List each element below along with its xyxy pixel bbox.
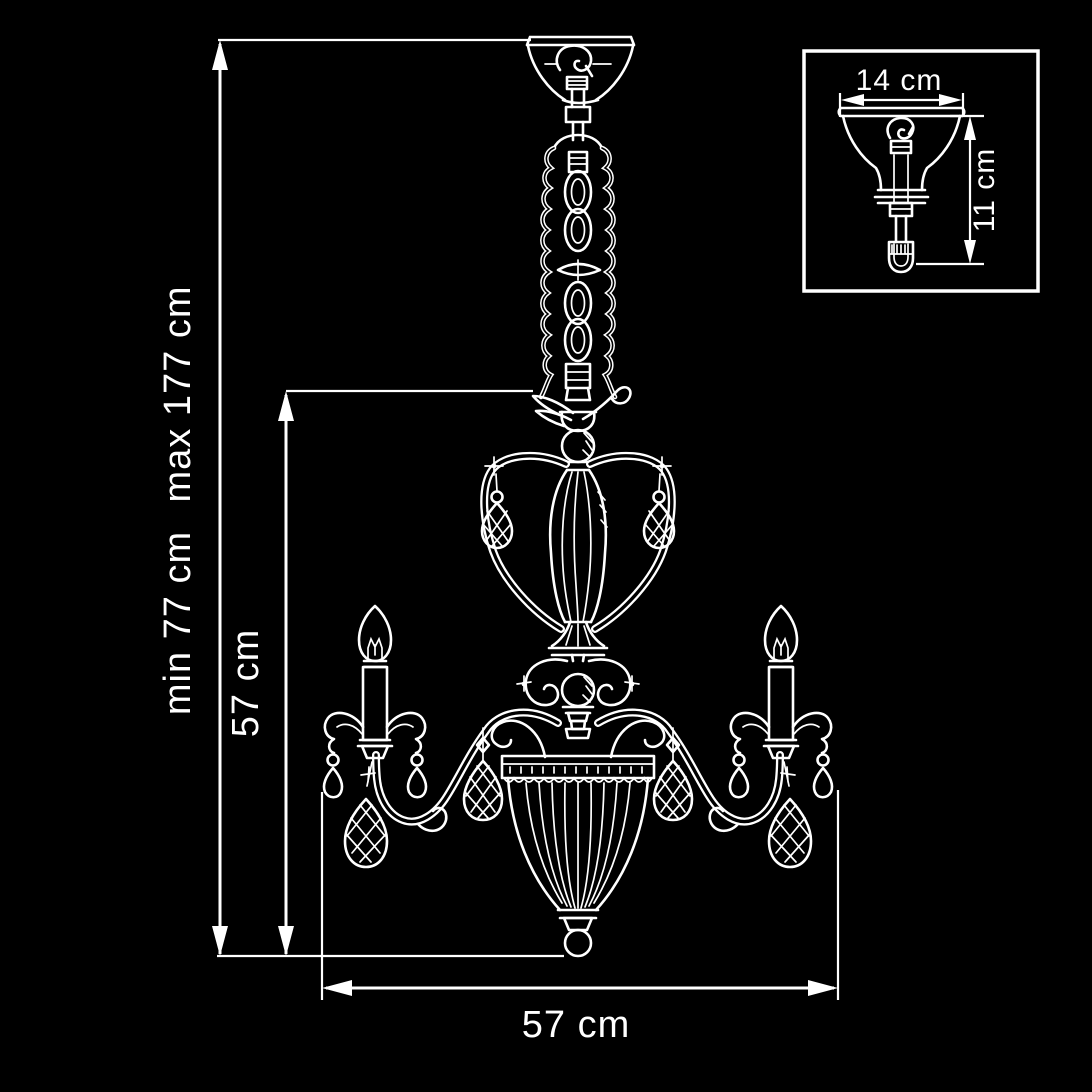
inset-height-label: 11 cm [968,148,1001,232]
finial-ball [565,930,591,956]
diagram-canvas: max 177 cm min 77 cm 57 cm 57 cm 14 cm [0,0,1092,1092]
height-min-label: min 77 cm [157,531,199,715]
canopy-hook-icon [557,46,592,76]
body-height-label: 57 cm [225,629,267,737]
right-arm-assembly [590,456,832,867]
inset-height-dimension: 11 cm [916,116,1001,264]
left-arm-assembly [324,456,566,867]
chain-links [558,152,600,388]
inset-hook-icon [888,118,914,138]
basket-bowl [502,756,654,956]
canopy-inset: 14 cm 11 cm [804,51,1038,291]
scroll-block [517,660,639,738]
ceiling-canopy [527,37,634,140]
center-column [517,430,639,738]
chandelier-drawing [324,37,832,956]
crown-ornament [533,387,630,431]
diagram-page: max 177 cm min 77 cm 57 cm 57 cm 14 cm [0,0,1092,1092]
height-max-label: max 177 cm [157,286,199,503]
inset-canopy-drawing [839,108,965,272]
vase-body [549,470,607,661]
width-label: 57 cm [522,1004,630,1046]
chain-with-sleeve [541,135,615,397]
inset-width-label: 14 cm [856,64,943,97]
